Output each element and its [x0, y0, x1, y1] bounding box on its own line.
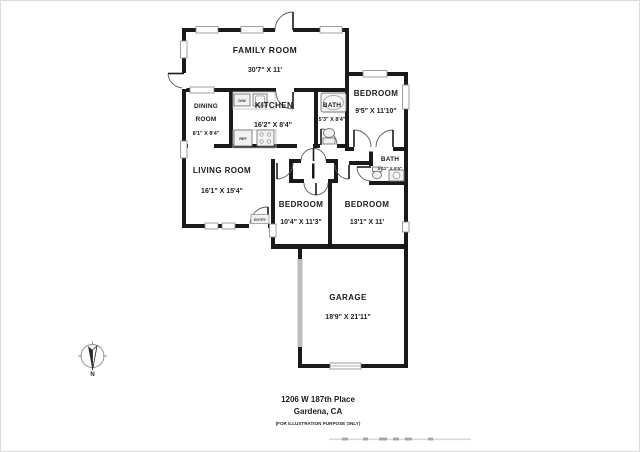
bedroom1-name: BEDROOM	[354, 89, 399, 98]
living-room-name: LIVING ROOM	[193, 166, 251, 175]
address-line1: 1206 W 187th Place	[281, 395, 355, 404]
room-bath2: BATH 5'11" X 5'5"	[378, 156, 402, 171]
family-room-top-door-swing-icon	[275, 12, 293, 30]
kitchen-dims: 16'2" X 8'4"	[254, 122, 292, 129]
garage-side-opening	[298, 259, 303, 347]
address-line2: Gardena, CA	[294, 407, 343, 416]
walls	[182, 28, 408, 368]
dining-room-name-line2: ROOM	[195, 116, 216, 123]
refrigerator-label: REF	[239, 137, 247, 141]
room-dining: DINING ROOM 8'1" X 8'4"	[193, 103, 220, 137]
room-family: FAMILY ROOM 30'7" X 11'	[233, 45, 298, 74]
floor-plan-drawing: D/W REF	[1, 1, 640, 452]
bedroom2-name: BEDROOM	[279, 200, 324, 209]
garage-dims: 18'9" X 21'11"	[325, 314, 370, 321]
vanity-sink-icon	[389, 170, 404, 181]
footer: 1206 W 187th Place Gardena, CA (FOR ILLU…	[276, 395, 361, 426]
family-room-dims: 30'7" X 11'	[248, 67, 283, 74]
bedroom3-dims: 13'1" X 11'	[350, 219, 385, 226]
room-bedroom2: BEDROOM 10'4" X 11'3"	[279, 200, 324, 226]
dishwasher-label: D/W	[238, 99, 246, 103]
watermark-artifact	[329, 438, 471, 441]
dining-room-name-line1: DINING	[194, 103, 218, 110]
dining-room-dims: 8'1" X 8'4"	[193, 131, 220, 137]
room-living: LIVING ROOM 16'1" X 15'4"	[193, 166, 251, 195]
toilet-icon	[323, 129, 335, 145]
bedroom2-dims: 10'4" X 11'3"	[280, 219, 322, 226]
entry-marker: ENTRY	[251, 215, 269, 224]
living-room-dims: 16'1" X 15'4"	[201, 188, 243, 195]
room-bedroom1: BEDROOM 9'5" X 11'10"	[354, 89, 399, 115]
bath1-dims: 5'3" X 8'4"	[319, 117, 346, 123]
room-bedroom3: BEDROOM 13'1" X 11'	[345, 200, 390, 226]
stove-icon	[257, 130, 274, 146]
room-garage: GARAGE 18'9" X 21'11"	[325, 293, 370, 321]
room-kitchen: KITCHEN 16'2" X 8'4"	[254, 101, 293, 129]
garage-name: GARAGE	[329, 293, 367, 302]
bath2-name: BATH	[381, 156, 399, 163]
bedroom2-closet-bifold-icon	[304, 183, 328, 195]
bedroom1-door-swing-icon	[354, 130, 393, 147]
bath1-name: BATH	[323, 102, 341, 109]
bedroom3-name: BEDROOM	[345, 200, 390, 209]
window-markers	[181, 27, 410, 370]
family-room-name: FAMILY ROOM	[233, 45, 298, 55]
floor-plan-page: D/W REF	[0, 0, 640, 452]
compass-icon: N	[78, 342, 107, 379]
bedroom1-dims: 9'5" X 11'10"	[355, 108, 397, 115]
kitchen-name: KITCHEN	[255, 101, 293, 110]
entry-label: ENTRY	[254, 218, 267, 222]
bath2-dims: 5'11" X 5'5"	[378, 166, 402, 171]
disclaimer-text: (FOR ILLUSTRATION PURPOSE ONLY)	[276, 421, 361, 426]
compass-north-label: N	[90, 372, 94, 378]
